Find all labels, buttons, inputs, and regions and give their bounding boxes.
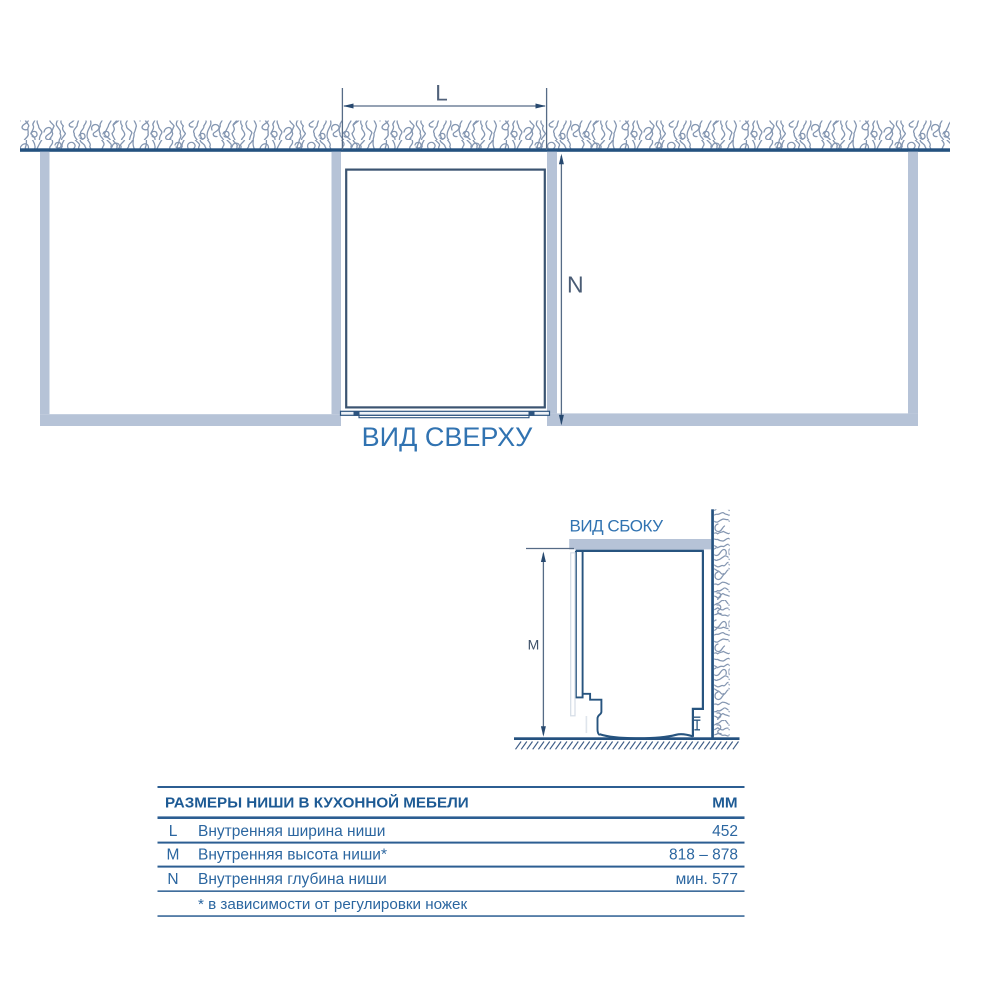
svg-text:* в зависимости от регулировки: * в зависимости от регулировки ножек xyxy=(198,896,468,913)
svg-text:L: L xyxy=(169,823,178,840)
svg-text:мин. 577: мин. 577 xyxy=(676,871,738,888)
svg-text:N: N xyxy=(167,871,178,888)
svg-text:Внутренняя глубина ниши: Внутренняя глубина ниши xyxy=(198,871,387,888)
svg-text:L: L xyxy=(435,81,448,106)
svg-text:N: N xyxy=(567,272,584,298)
svg-text:818 – 878: 818 – 878 xyxy=(669,846,738,863)
svg-text:ВИД СВЕРХУ: ВИД СВЕРХУ xyxy=(362,422,534,452)
svg-text:ВИД СБОКУ: ВИД СБОКУ xyxy=(569,517,663,536)
svg-text:M: M xyxy=(167,846,180,863)
svg-text:Внутренняя ширина ниши: Внутренняя ширина ниши xyxy=(198,823,385,840)
svg-text:452: 452 xyxy=(712,823,738,840)
svg-text:ММ: ММ xyxy=(712,795,737,812)
svg-text:Внутренняя высота ниши*: Внутренняя высота ниши* xyxy=(198,846,387,863)
svg-text:РАЗМЕРЫ НИШИ В КУХОННОЙ МЕБЕЛИ: РАЗМЕРЫ НИШИ В КУХОННОЙ МЕБЕЛИ xyxy=(165,794,469,812)
svg-text:M: M xyxy=(528,637,540,653)
